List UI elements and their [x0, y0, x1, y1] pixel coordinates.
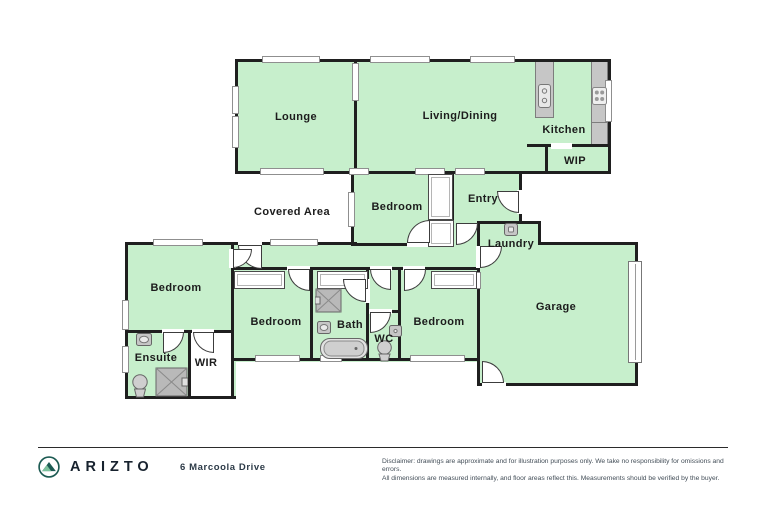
shower-icon	[315, 288, 342, 313]
property-address: 6 Marcoola Drive	[180, 462, 266, 473]
kitchen-sink-icon	[538, 84, 551, 108]
window	[232, 116, 239, 148]
disclaimer-line-2: All dimensions are measured internally, …	[382, 475, 732, 483]
room-label-bedroom-mid: Bedroom	[371, 201, 422, 213]
window	[153, 239, 203, 246]
window	[352, 63, 359, 101]
brand-name: ARIZTO	[70, 459, 154, 475]
door-opening	[551, 143, 572, 149]
window	[255, 355, 300, 362]
room-label-bath: Bath	[337, 319, 363, 331]
window	[260, 168, 324, 175]
kitchen-counter	[591, 122, 608, 145]
arizto-logo-mountain-icon	[38, 456, 60, 478]
window	[470, 56, 515, 63]
wall-segment	[188, 330, 191, 399]
room-label-lounge: Lounge	[275, 111, 317, 123]
footer-divider	[38, 447, 728, 448]
window	[262, 56, 320, 63]
window	[348, 192, 355, 227]
window	[232, 86, 239, 114]
wall-segment	[545, 146, 548, 173]
room-label-kitchen: Kitchen	[542, 124, 585, 136]
room-area-garage	[477, 242, 638, 386]
room-label-ensuite: Ensuite	[135, 352, 178, 364]
washing-machine-icon	[504, 223, 518, 236]
wall-segment	[398, 267, 401, 361]
window	[122, 300, 129, 330]
wardrobe	[428, 174, 453, 220]
wardrobe	[234, 271, 285, 289]
garage-door-line	[635, 264, 636, 360]
vanity-sink-icon	[317, 321, 331, 334]
wall-segment	[231, 267, 480, 270]
room-label-bedroom2: Bedroom	[250, 316, 301, 328]
room-label-wir: WIR	[195, 357, 218, 369]
cupboard	[428, 220, 454, 247]
room-label-bedroom-master: Bedroom	[150, 282, 201, 294]
room-label-covered-area: Covered Area	[254, 206, 330, 218]
room-label-bedroom3: Bedroom	[413, 316, 464, 328]
bathtub-icon	[320, 338, 368, 359]
toilet-icon	[131, 374, 149, 398]
room-label-entry: Entry	[468, 193, 498, 205]
stove-icon	[592, 87, 607, 105]
garage-door	[628, 261, 642, 363]
wardrobe	[431, 271, 477, 289]
shower-icon	[155, 367, 188, 397]
disclaimer-line-1: Disclaimer: drawings are approximate and…	[382, 458, 732, 475]
room-label-wip: WIP	[564, 155, 586, 167]
room-label-wc: WC	[374, 333, 393, 345]
window	[455, 168, 485, 175]
room-label-living-dining: Living/Dining	[423, 110, 498, 122]
room-label-garage: Garage	[536, 301, 576, 313]
room-label-laundry: Laundry	[488, 238, 534, 250]
wall-segment	[310, 267, 313, 361]
opening	[349, 168, 369, 175]
window	[270, 239, 318, 246]
wall-segment	[538, 242, 638, 245]
window	[410, 355, 465, 362]
vanity-sink-icon	[136, 333, 152, 346]
window	[370, 56, 430, 63]
disclaimer-text: Disclaimer: drawings are approximate and…	[382, 458, 732, 483]
floor-plan-page: Lounge Living/Dining Kitchen WIP Covered…	[0, 0, 768, 512]
window	[122, 346, 129, 373]
